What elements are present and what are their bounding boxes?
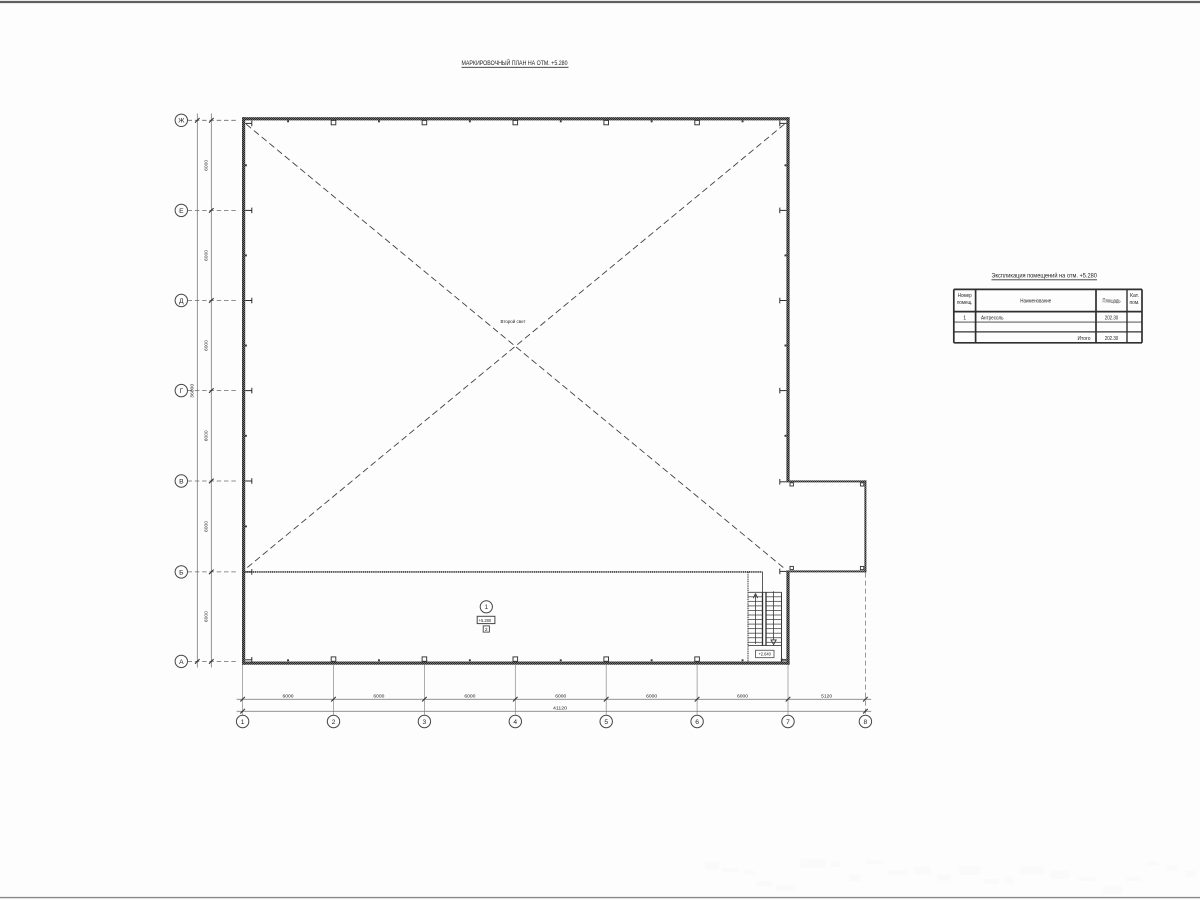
svg-text:1: 1	[963, 315, 966, 321]
svg-text:МАРКИРОВОЧНЫЙ ПЛАН НА ОТМ. +5.: МАРКИРОВОЧНЫЙ ПЛАН НА ОТМ. +5.280	[462, 58, 568, 67]
svg-text:4: 4	[513, 719, 517, 726]
svg-text:В: В	[179, 478, 184, 485]
svg-text:Б: Б	[179, 569, 184, 576]
svg-text:6000: 6000	[464, 694, 475, 700]
svg-text:1: 1	[241, 719, 245, 726]
svg-text:Итого: Итого	[1078, 336, 1091, 342]
svg-text:Наименование: Наименование	[1020, 299, 1051, 305]
svg-text:6000: 6000	[203, 160, 209, 171]
svg-text:+2.640: +2.640	[758, 652, 771, 657]
svg-text:6000: 6000	[646, 694, 657, 700]
svg-text:Номер: Номер	[958, 293, 972, 299]
svg-text:6000: 6000	[203, 340, 209, 351]
svg-text:6000: 6000	[203, 611, 209, 622]
svg-text:41120: 41120	[553, 706, 567, 712]
svg-text:Д: Д	[179, 298, 184, 305]
svg-text:7: 7	[786, 719, 790, 726]
svg-text:5: 5	[604, 719, 608, 726]
svg-text:Антресоль: Антресоль	[981, 315, 1004, 321]
svg-text:2: 2	[332, 719, 336, 726]
svg-text:5120: 5120	[821, 694, 832, 700]
svg-text:202.30: 202.30	[1105, 315, 1119, 321]
svg-text:Экспликация помещений на отм.: Экспликация помещений на отм. +5.280	[991, 273, 1097, 280]
svg-text:6000: 6000	[203, 430, 209, 441]
svg-text:6000: 6000	[555, 694, 566, 700]
svg-text:Кат.: Кат.	[1130, 293, 1139, 299]
svg-text:Г: Г	[179, 388, 183, 395]
svg-text:помещ.: помещ.	[957, 300, 973, 306]
svg-text:6000: 6000	[283, 694, 294, 700]
svg-text:2: 2	[485, 627, 488, 632]
svg-text:А: А	[179, 659, 184, 666]
svg-text:+5.280: +5.280	[479, 618, 492, 623]
svg-text:пом.: пом.	[1130, 300, 1140, 306]
svg-text:1: 1	[485, 604, 489, 611]
svg-text:Е: Е	[179, 208, 184, 215]
svg-text:3: 3	[423, 719, 427, 726]
svg-text:8: 8	[864, 719, 868, 726]
svg-text:6000: 6000	[203, 250, 209, 261]
svg-text:Ж: Ж	[178, 118, 185, 125]
svg-text:202.30: 202.30	[1105, 336, 1119, 342]
svg-text:36000: 36000	[189, 384, 195, 398]
svg-text:6000: 6000	[373, 694, 384, 700]
svg-text:Второй свет: Второй свет	[501, 318, 527, 324]
svg-text:6000: 6000	[203, 521, 209, 532]
svg-text:Площадь: Площадь	[1103, 299, 1121, 305]
svg-text:6: 6	[695, 719, 699, 726]
svg-text:6000: 6000	[737, 694, 748, 700]
